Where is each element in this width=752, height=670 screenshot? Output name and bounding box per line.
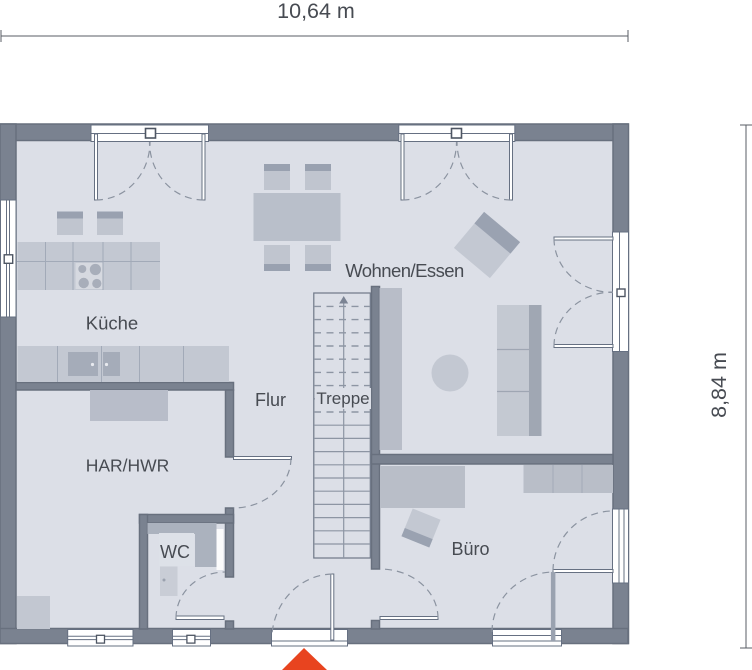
svg-text:Wohnen/Essen: Wohnen/Essen (345, 260, 464, 281)
svg-text:8,84 m: 8,84 m (707, 352, 731, 418)
svg-text:WC: WC (160, 542, 190, 562)
svg-text:HAR/HWR: HAR/HWR (86, 456, 170, 476)
svg-text:Büro: Büro (451, 539, 489, 559)
svg-text:Flur: Flur (255, 390, 286, 410)
svg-text:Küche: Küche (86, 313, 138, 334)
svg-text:10,64 m: 10,64 m (277, 0, 355, 23)
svg-text:Treppe: Treppe (316, 389, 369, 408)
